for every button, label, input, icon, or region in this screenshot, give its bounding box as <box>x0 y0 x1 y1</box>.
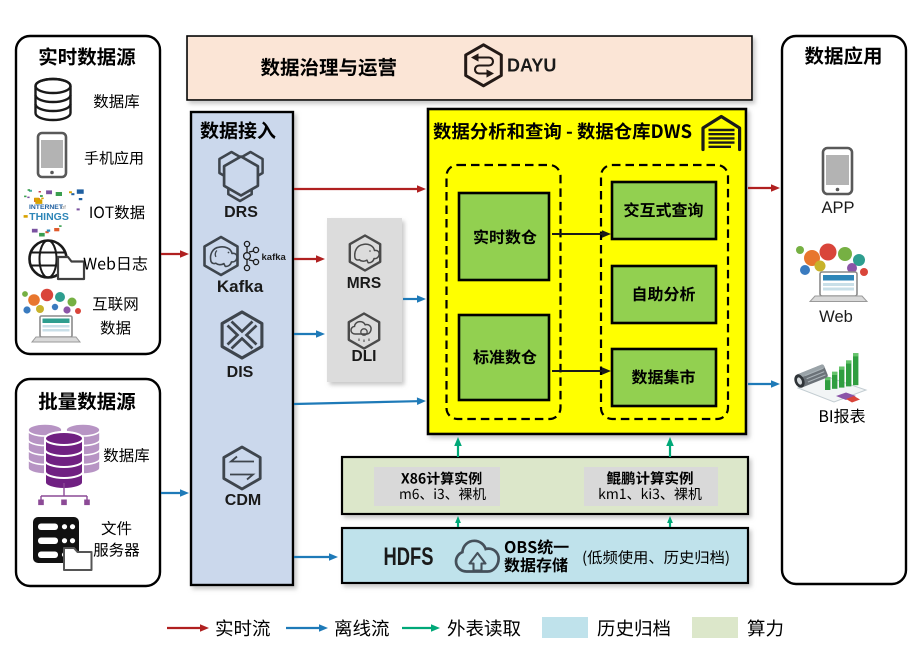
svg-text:MRS: MRS <box>347 275 381 292</box>
svg-text:APP: APP <box>821 199 854 217</box>
svg-text:INTERNET: INTERNET <box>29 204 64 211</box>
svg-text:DAYU: DAYU <box>507 56 556 76</box>
svg-text:CDM: CDM <box>225 492 261 509</box>
svg-text:Kafka: Kafka <box>217 277 264 296</box>
svg-text:DLI: DLI <box>352 348 377 365</box>
svg-text:THINGS: THINGS <box>29 211 69 223</box>
svg-text:Web: Web <box>819 308 853 326</box>
svg-text:HDFS: HDFS <box>384 543 434 571</box>
svg-text:kafka: kafka <box>262 252 287 263</box>
svg-text:DIS: DIS <box>227 364 254 381</box>
svg-text:DRS: DRS <box>224 204 258 221</box>
